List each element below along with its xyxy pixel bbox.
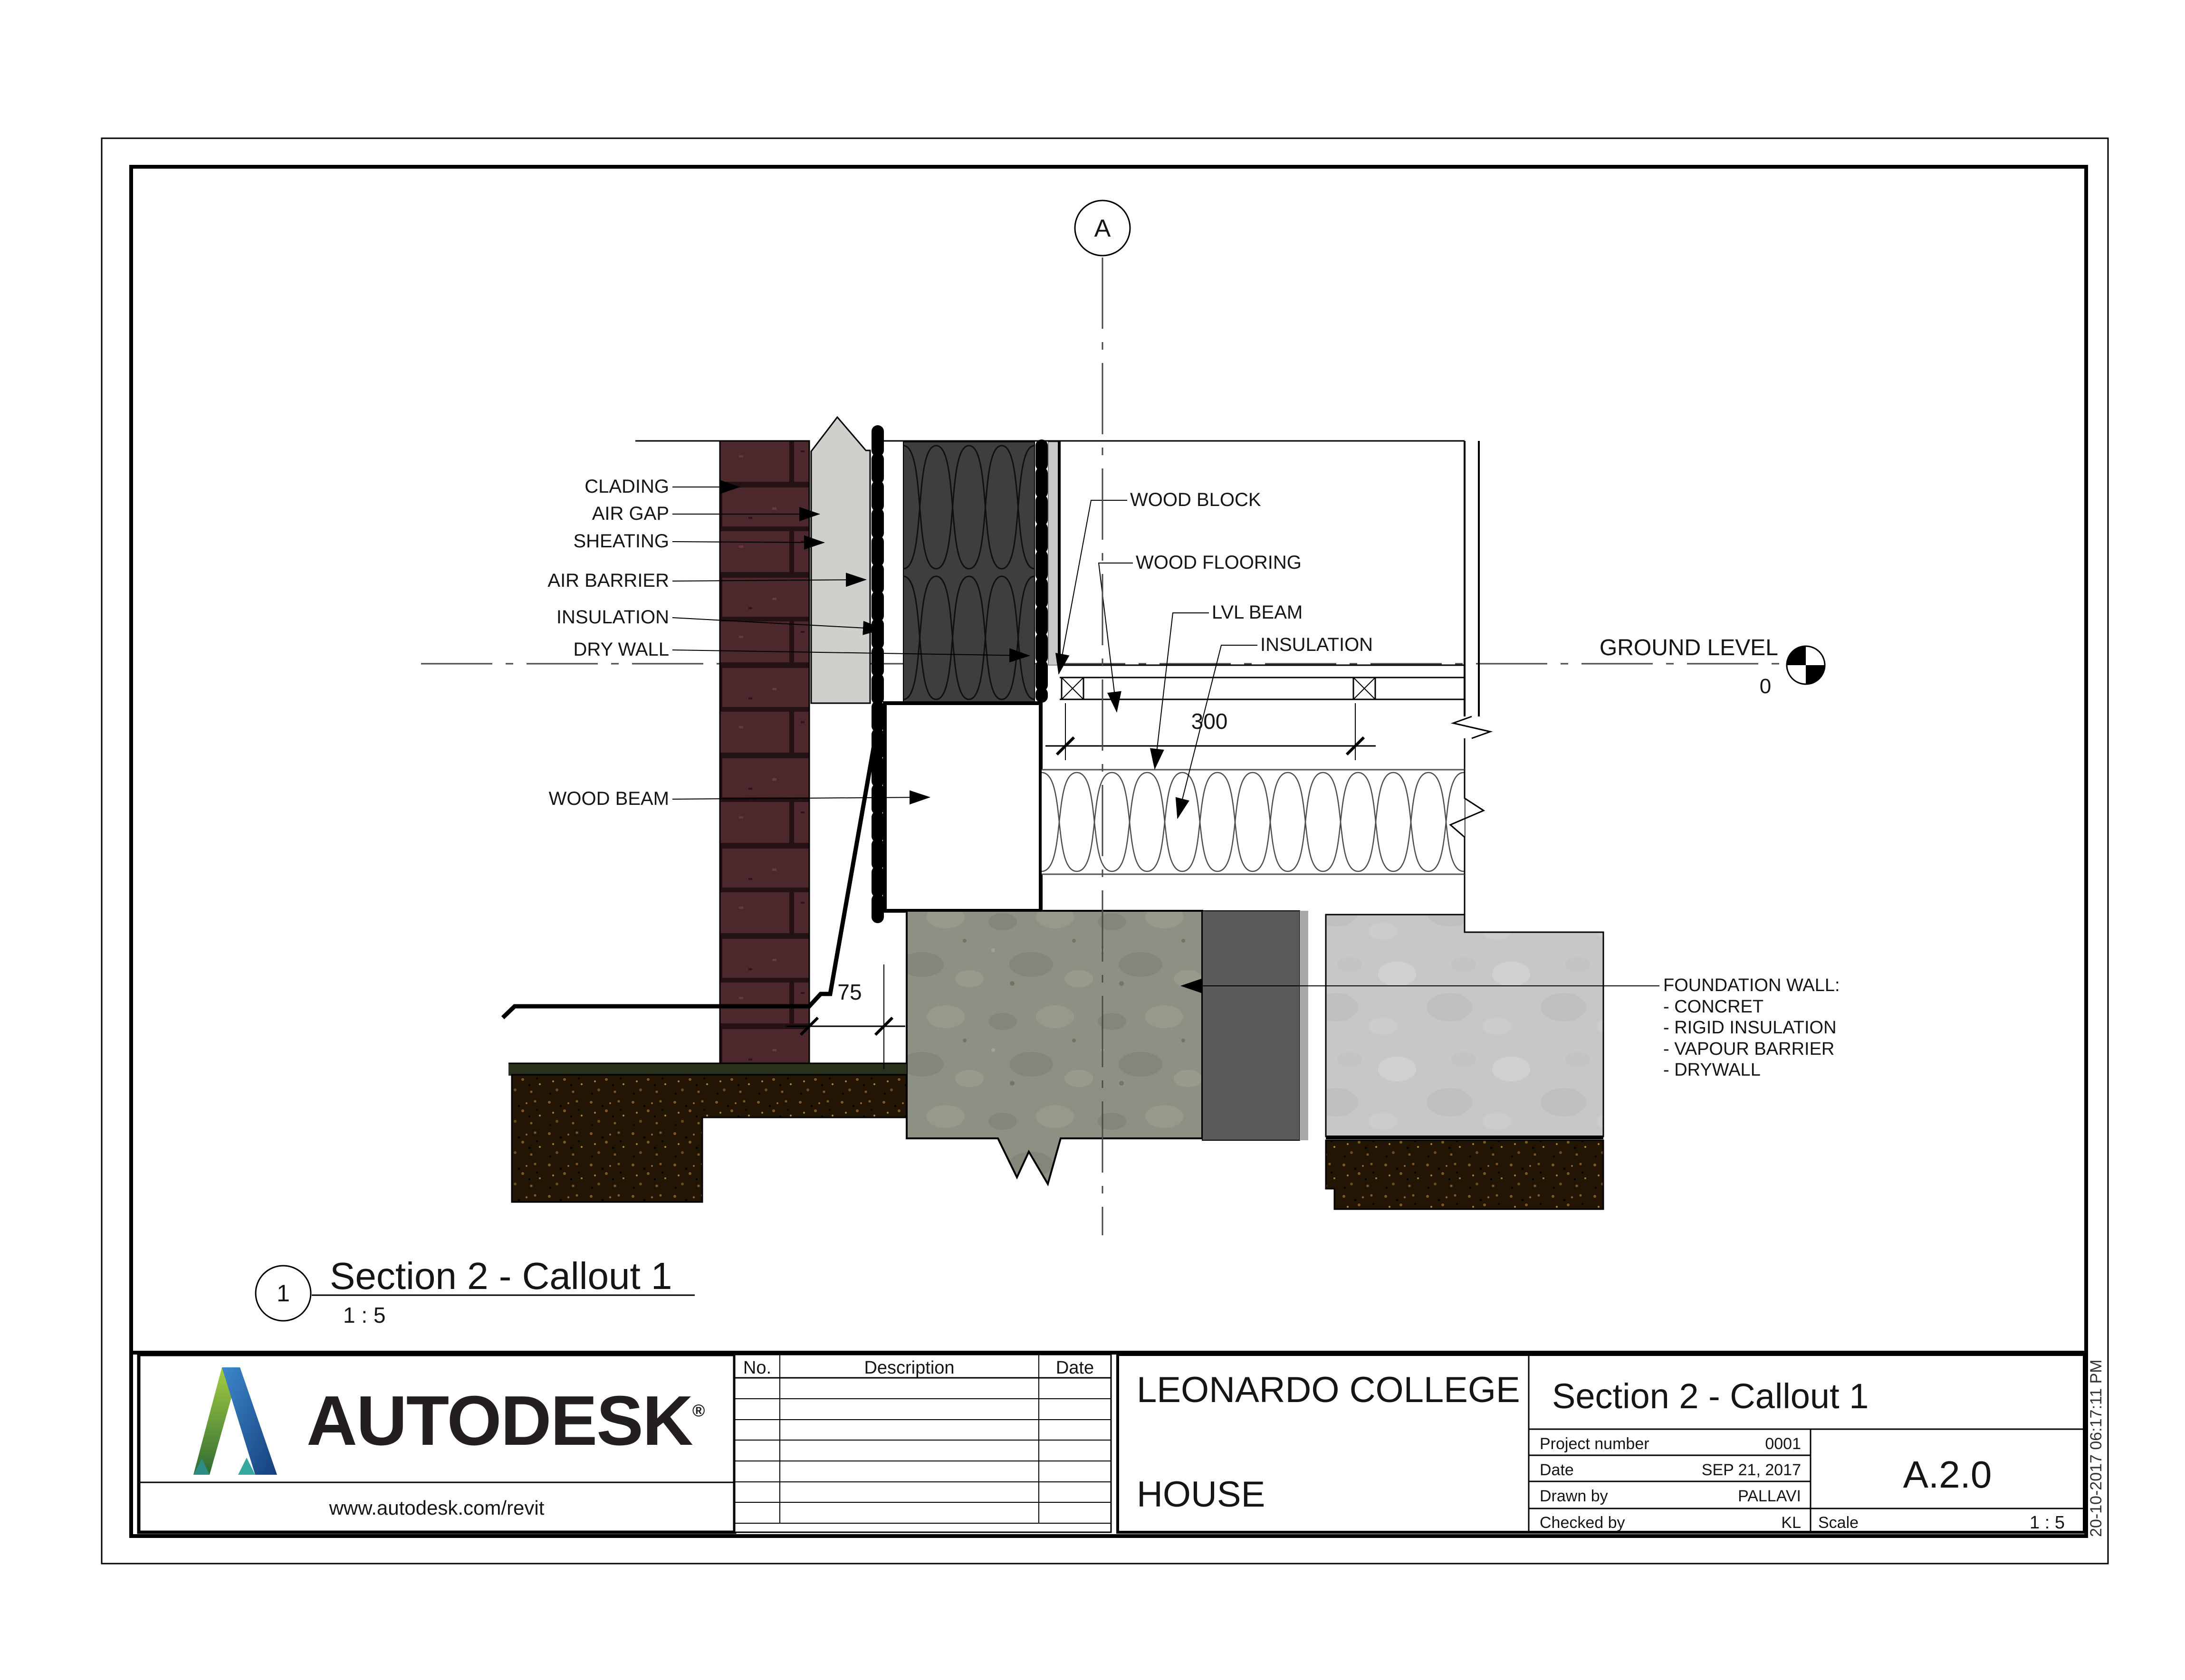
field-label-checked-by: Checked by: [1540, 1514, 1625, 1532]
field-label-drawn-by: Drawn by: [1540, 1487, 1608, 1506]
sheet-title: Section 2 - Callout 1: [1552, 1376, 1869, 1416]
scale-value: 1 : 5: [2030, 1513, 2065, 1534]
label-air-gap: AIR GAP: [592, 503, 669, 525]
print-timestamp: 20-10-2017 06:17:11 PM: [2087, 1352, 2109, 1537]
sheet-page: A CLADING AIR GAP SHEATING AIR BARRIER I…: [0, 0, 2185, 1680]
dim-300-text: 300: [1176, 709, 1243, 734]
rigid-insulation-strip: [1202, 911, 1308, 1140]
air-gap-sheathing: [811, 417, 870, 703]
field-value-date: SEP 21, 2017: [1702, 1461, 1801, 1480]
sheet-number: A.2.0: [1811, 1453, 2084, 1497]
autodesk-brand-text: AUTODESK: [307, 1382, 692, 1460]
wood-blocking-squares: [1062, 678, 1375, 699]
project-name: HOUSE: [1137, 1474, 1265, 1515]
autodesk-url: www.autodesk.com/revit: [139, 1497, 735, 1519]
soil-left-footing: [512, 1075, 907, 1202]
field-label-date: Date: [1540, 1461, 1574, 1480]
label-wood-flooring: WOOD FLOORING: [1136, 552, 1302, 573]
label-lvl-beam: LVL BEAM: [1212, 601, 1303, 623]
concrete-foundation: [907, 911, 1202, 1184]
level-marker-icon: [1787, 646, 1825, 684]
floor-slab: [1326, 915, 1603, 1137]
label-clading: CLADING: [585, 476, 669, 497]
label-air-barrier: AIR BARRIER: [547, 570, 669, 592]
field-label-project-number: Project number: [1540, 1435, 1649, 1453]
foundation-note-item: - RIGID INSULATION: [1663, 1017, 1840, 1039]
foundation-note-item: - DRYWALL: [1663, 1060, 1840, 1081]
label-wood-beam: WOOD BEAM: [549, 788, 669, 810]
wall-batt-insulation: [903, 442, 1035, 703]
ground-level-value: 0: [1749, 675, 1782, 699]
brick-veneer: [720, 441, 809, 1070]
foundation-note-title: FOUNDATION WALL:: [1663, 975, 1840, 996]
field-value-project-number: 0001: [1765, 1435, 1801, 1453]
label-dry-wall: DRY WALL: [573, 639, 669, 660]
label-wood-block: WOOD BLOCK: [1130, 489, 1261, 511]
field-value-drawn-by: PALLAVI: [1738, 1487, 1801, 1506]
ground-level-label: GROUND LEVEL: [1600, 635, 1778, 661]
foundation-note: FOUNDATION WALL: - CONCRET - RIGID INSUL…: [1663, 975, 1840, 1081]
revision-col-date: Date: [1039, 1358, 1111, 1379]
flashing-line: [503, 711, 880, 1018]
client-name: LEONARDO COLLEGE: [1137, 1369, 1520, 1411]
dim-75-text: 75: [816, 980, 883, 1005]
label-sheating: SHEATING: [573, 530, 669, 552]
label-insulation-wall: INSULATION: [556, 606, 669, 628]
revision-col-no: No.: [735, 1358, 780, 1379]
grass-strip: [508, 1063, 907, 1076]
grid-bubble-label: A: [1087, 215, 1118, 243]
scale-label: Scale: [1818, 1514, 1859, 1532]
view-title: Section 2 - Callout 1: [330, 1254, 672, 1298]
revision-col-description: Description: [780, 1358, 1039, 1379]
foundation-note-item: - CONCRET: [1663, 996, 1840, 1018]
wood-beam-block: [885, 703, 1041, 911]
view-number: 1: [268, 1280, 298, 1308]
field-value-checked-by: KL: [1781, 1514, 1801, 1532]
view-scale: 1 : 5: [343, 1303, 386, 1328]
drywall-strip: [1048, 442, 1059, 665]
foundation-note-item: - VAPOUR BARRIER: [1663, 1039, 1840, 1060]
registered-icon: ®: [692, 1401, 704, 1420]
revision-table-grid: [735, 1355, 1111, 1532]
soil-right: [1326, 1140, 1603, 1209]
label-insulation-floor: INSULATION: [1260, 634, 1373, 656]
autodesk-wordmark: AUTODESK®: [307, 1381, 704, 1461]
floor-batt-insulation: [1042, 770, 1484, 874]
